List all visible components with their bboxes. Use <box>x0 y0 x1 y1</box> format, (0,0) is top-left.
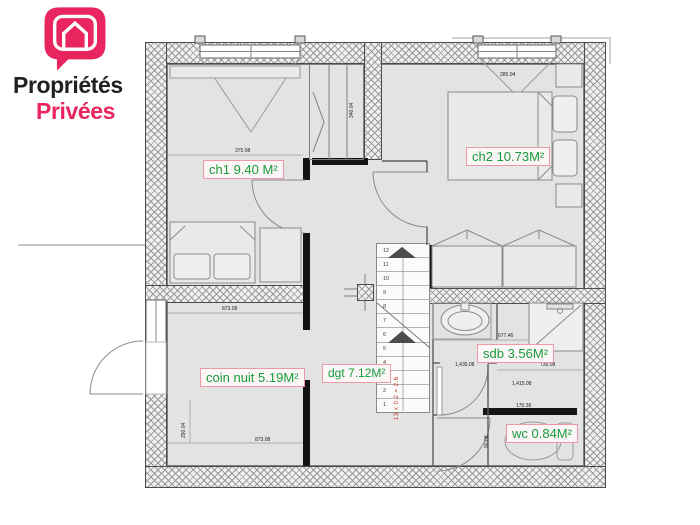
dimension-label: 290.04 <box>181 423 187 438</box>
room-label-coin-nuit: coin nuit 5.19M² <box>200 368 305 387</box>
dimension-label: 677.46 <box>498 333 513 339</box>
wall-bottom <box>145 466 606 488</box>
dimension-label: 170.36 <box>516 403 531 409</box>
logo-inner-ring <box>55 16 96 49</box>
stair-calculation-annotation: 13 x 0.2 = 2.6 <box>394 376 400 420</box>
stair-step: 7 <box>377 314 429 328</box>
wall-left <box>145 42 167 488</box>
flue-block <box>357 284 374 301</box>
wall-landing-top <box>312 158 368 165</box>
wall-sdb-wc <box>483 408 577 415</box>
floor-plan-page: { "logo": { "line1": "Propriétés", "line… <box>0 0 700 525</box>
logo-text-line2: Privées <box>36 98 115 125</box>
stair-step-number: 5 <box>383 346 386 352</box>
stair-step-number: 7 <box>383 318 386 324</box>
stair-step: 12 <box>377 244 429 258</box>
stair-step: 6 <box>377 328 429 342</box>
dimension-label: 90.08 <box>484 435 490 448</box>
dimension-label: 375.08 <box>235 148 250 154</box>
wall-ch2-sdb <box>427 288 606 304</box>
dimension-label: 285.04 <box>500 72 515 78</box>
room-label-ch2: ch2 10.73M² <box>466 147 550 166</box>
wall-landing-left-lower <box>303 233 310 330</box>
logo-bubble-house-icon <box>40 4 110 74</box>
stair-step-number: 2 <box>383 388 386 394</box>
logo-text-line1: Propriétés <box>13 72 123 99</box>
stair-step: 9 <box>377 286 429 300</box>
room-label-wc: wc 0.84M² <box>506 424 578 443</box>
wall-right <box>584 42 606 488</box>
stair-step-number: 12 <box>383 248 389 254</box>
stair-step: 1 <box>377 399 429 412</box>
logo-house-icon <box>64 23 87 49</box>
stair-step: 8 <box>377 300 429 314</box>
wall-landing-left-upper <box>303 158 310 180</box>
stair-step-number: 11 <box>383 262 389 268</box>
room-label-ch1: ch1 9.40 M² <box>203 160 284 179</box>
stair-step-number: 1 <box>383 402 386 408</box>
room-label-sdb: sdb 3.56M² <box>477 344 554 363</box>
dimension-label: 340.04 <box>349 103 355 118</box>
dimension-label: 873.08 <box>222 306 237 312</box>
stair-step: 2 <box>377 385 429 399</box>
wall-ch1-coin <box>145 285 310 303</box>
stair-step-number: 8 <box>383 304 386 310</box>
stair-step-number: 9 <box>383 290 386 296</box>
stair-step: 5 <box>377 343 429 357</box>
wall-coin-nuit-east <box>303 380 310 466</box>
dimension-label: 873.08 <box>255 437 270 443</box>
stair-step-number: 10 <box>383 276 389 282</box>
stair-step: 11 <box>377 258 429 272</box>
wall-chimney <box>364 42 382 160</box>
dimension-label: 1,415.08 <box>512 381 531 387</box>
dimension-label: 1,435.08 <box>455 362 474 368</box>
logo-bubble <box>45 7 106 70</box>
stair-step: 10 <box>377 272 429 286</box>
staircase: 12 11 10 9 8 7 6 5 4 3 2 1 <box>376 243 430 413</box>
room-label-dgt: dgt 7.12M² <box>322 364 391 383</box>
stair-step-number: 6 <box>383 332 386 338</box>
